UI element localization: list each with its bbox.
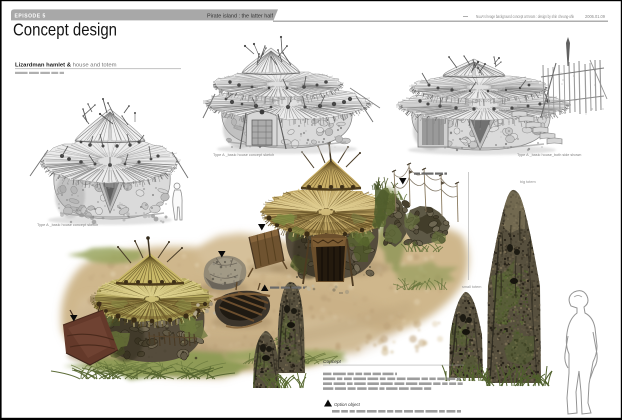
svg-text:2006.01.09: 2006.01.09 xyxy=(585,14,606,19)
svg-text:Type A _basic house concept sk: Type A _basic house concept sketch xyxy=(37,223,98,227)
svg-text:Concept: Concept xyxy=(323,359,342,365)
svg-text:Type A _basic house concept sk: Type A _basic house concept sketch xyxy=(213,153,274,157)
svg-text:Lizardman hamlet & house and t: Lizardman hamlet & house and totem xyxy=(15,62,117,68)
svg-text:NuuA's heage background concep: NuuA's heage background concept art team… xyxy=(476,14,575,19)
svg-text:Type A _basic house_both side: Type A _basic house_both side shown xyxy=(517,153,581,157)
svg-text:Option object: Option object xyxy=(334,402,361,407)
svg-text:Concept design: Concept design xyxy=(13,20,117,40)
svg-text:big totem: big totem xyxy=(520,180,536,184)
svg-text:small totem: small totem xyxy=(462,285,481,289)
svg-text:Pirate island : the latter hal: Pirate island : the latter half xyxy=(207,14,274,20)
